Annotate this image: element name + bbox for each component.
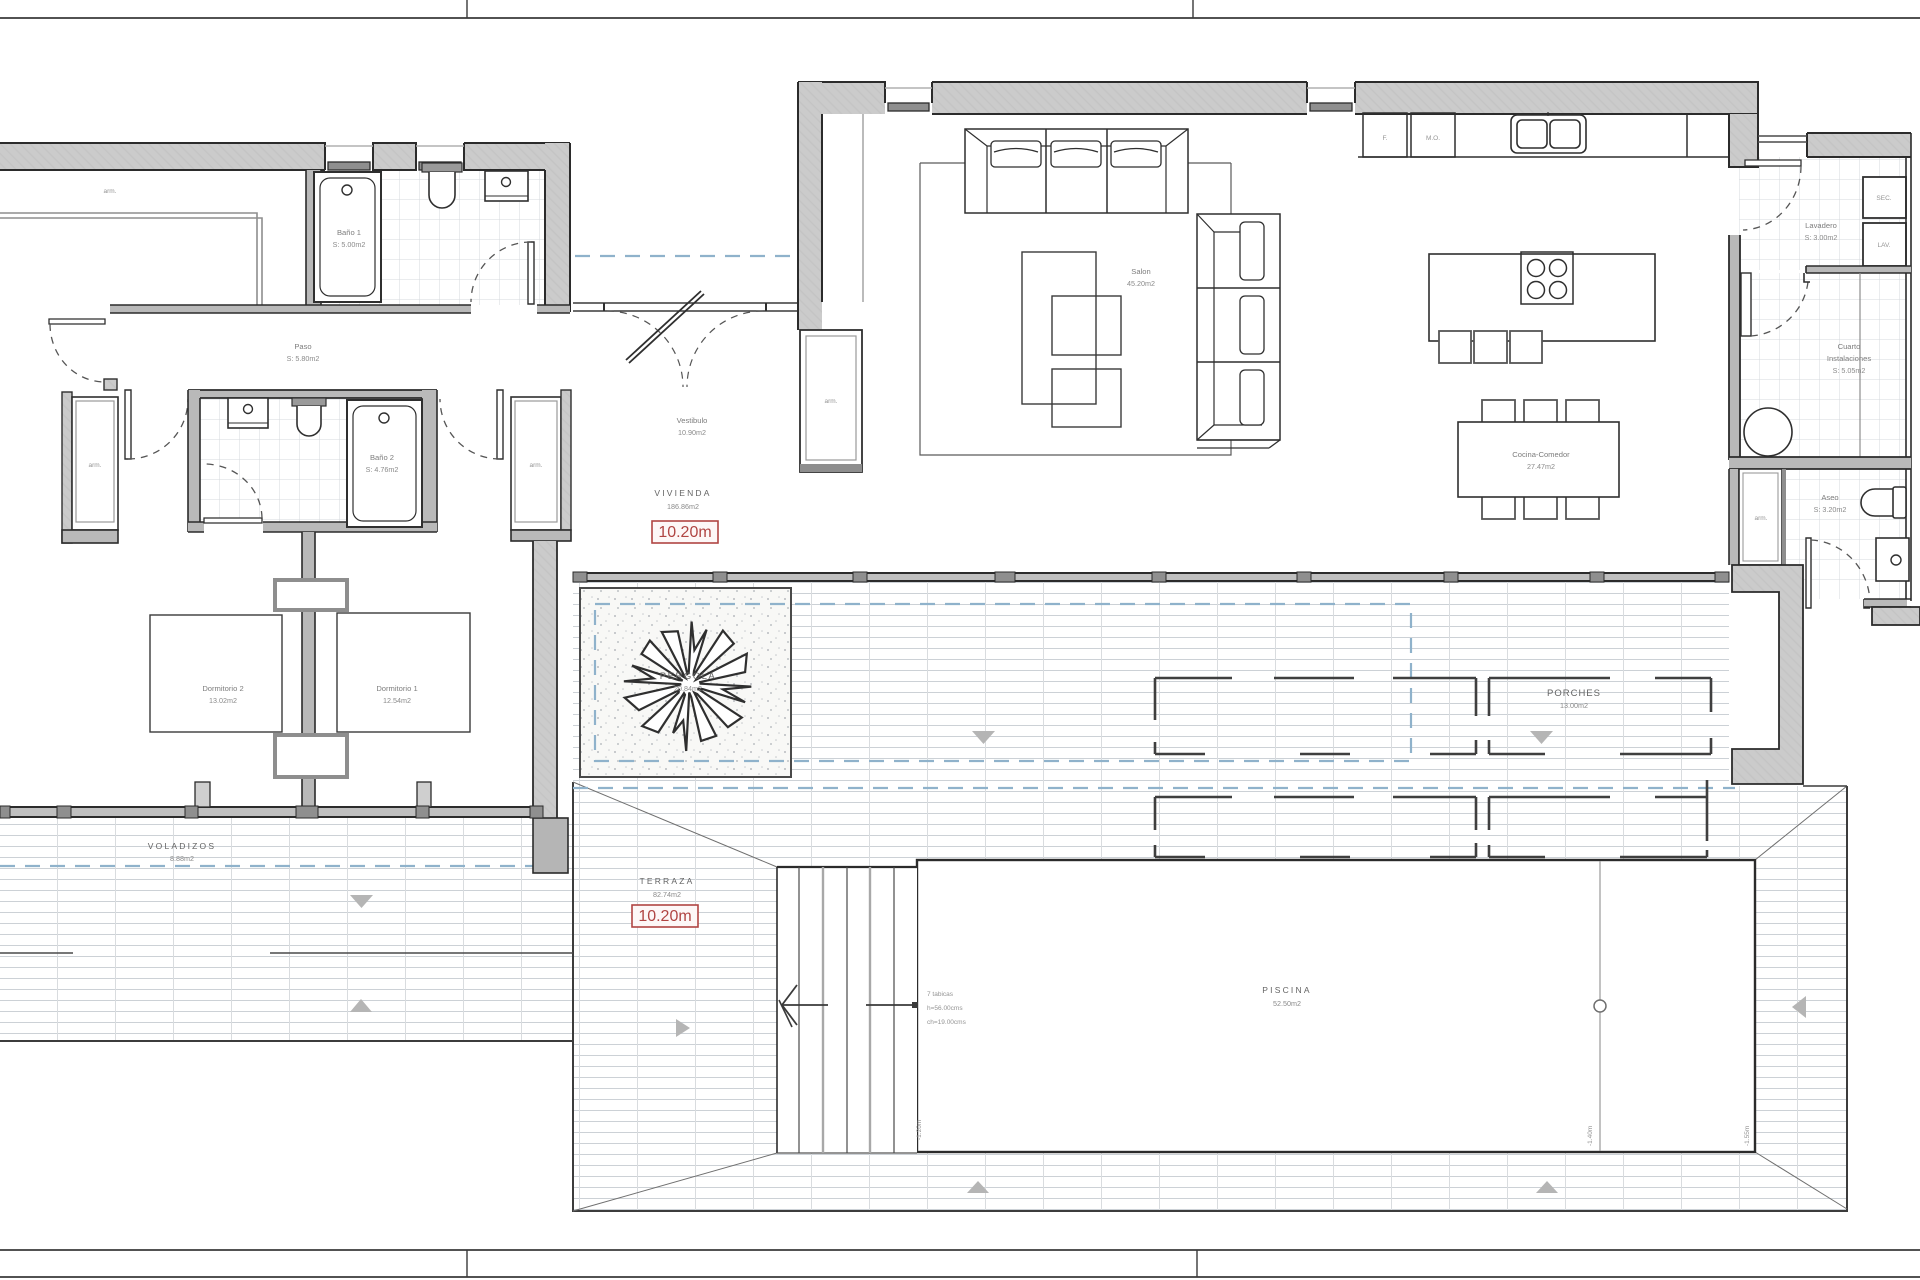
svg-text:SEC.: SEC. (1876, 195, 1891, 202)
svg-text:8.88m2: 8.88m2 (170, 854, 194, 863)
svg-text:Dormitorio 1: Dormitorio 1 (376, 684, 417, 693)
svg-text:arm.: arm. (825, 398, 838, 405)
svg-text:arm.: arm. (104, 188, 117, 195)
svg-text:-1.55m: -1.55m (1744, 1126, 1751, 1146)
svg-text:Cuarto: Cuarto (1838, 342, 1861, 351)
svg-text:S: 3.20m2: S: 3.20m2 (1814, 505, 1847, 514)
svg-text:10.20m: 10.20m (638, 908, 691, 925)
svg-text:Salon: Salon (1131, 267, 1150, 276)
svg-text:Dormitorio 2: Dormitorio 2 (202, 684, 243, 693)
svg-text:S: 5.80m2: S: 5.80m2 (287, 354, 320, 363)
svg-text:Lavadero: Lavadero (1805, 221, 1837, 230)
svg-text:186.86m2: 186.86m2 (667, 502, 699, 511)
svg-text:Cocina-Comedor: Cocina-Comedor (1512, 450, 1570, 459)
svg-text:13.00m2: 13.00m2 (1560, 701, 1588, 710)
svg-text:M.O.: M.O. (1426, 135, 1440, 142)
svg-text:S: 5.05m2: S: 5.05m2 (1833, 366, 1866, 375)
svg-text:-1.40m: -1.40m (1587, 1126, 1594, 1146)
svg-text:PERGOLA: PERGOLA (660, 671, 716, 682)
svg-text:h=56.00cms: h=56.00cms (927, 1005, 963, 1012)
svg-text:arm.: arm. (530, 462, 543, 469)
svg-text:Baño 1: Baño 1 (337, 228, 361, 237)
svg-text:-1.20m: -1.20m (916, 1120, 923, 1140)
svg-text:arm.: arm. (1755, 515, 1768, 522)
svg-text:52.50m2: 52.50m2 (1273, 999, 1301, 1008)
svg-text:82.74m2: 82.74m2 (653, 890, 681, 899)
svg-text:10.20m: 10.20m (658, 524, 711, 541)
svg-text:S: 4.76m2: S: 4.76m2 (366, 465, 399, 474)
svg-text:12.54m2: 12.54m2 (383, 696, 411, 705)
svg-text:Paso: Paso (294, 342, 311, 351)
svg-text:TERRAZA: TERRAZA (639, 876, 694, 886)
svg-text:VIVIENDA: VIVIENDA (654, 488, 711, 498)
svg-text:arm.: arm. (89, 462, 102, 469)
svg-text:PORCHES: PORCHES (1547, 688, 1601, 699)
svg-text:S: 5.00m2: S: 5.00m2 (333, 240, 366, 249)
svg-text:20.84m2: 20.84m2 (674, 684, 702, 693)
svg-text:Instalaciones: Instalaciones (1827, 354, 1872, 363)
svg-text:45.20m2: 45.20m2 (1127, 279, 1155, 288)
svg-text:PISCINA: PISCINA (1262, 985, 1311, 995)
svg-text:Vestibulo: Vestibulo (677, 416, 708, 425)
svg-text:27.47m2: 27.47m2 (1527, 462, 1555, 471)
svg-text:13.02m2: 13.02m2 (209, 696, 237, 705)
svg-text:S: 3.00m2: S: 3.00m2 (1805, 233, 1838, 242)
svg-text:10.90m2: 10.90m2 (678, 428, 706, 437)
svg-text:LAV.: LAV. (1877, 242, 1890, 249)
svg-text:F.: F. (1382, 135, 1387, 142)
svg-text:Aseo: Aseo (1821, 493, 1838, 502)
svg-text:ch=19.00cms: ch=19.00cms (927, 1019, 967, 1026)
svg-text:VOLADIZOS: VOLADIZOS (148, 841, 216, 851)
svg-text:Baño 2: Baño 2 (370, 453, 394, 462)
svg-text:7 tabicas: 7 tabicas (927, 991, 954, 998)
